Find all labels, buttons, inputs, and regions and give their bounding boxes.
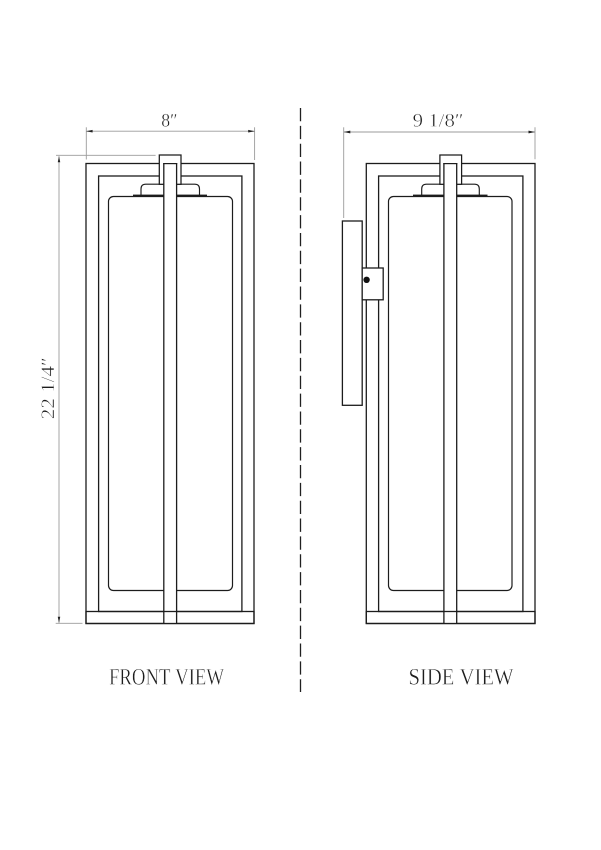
svg-text:SIDE VIEW: SIDE VIEW (409, 665, 515, 691)
svg-text:8″: 8″ (161, 110, 177, 131)
svg-text:FRONT VIEW: FRONT VIEW (109, 665, 225, 691)
svg-text:22 1/4″: 22 1/4″ (38, 357, 59, 419)
svg-text:9 1/8″: 9 1/8″ (413, 110, 464, 131)
